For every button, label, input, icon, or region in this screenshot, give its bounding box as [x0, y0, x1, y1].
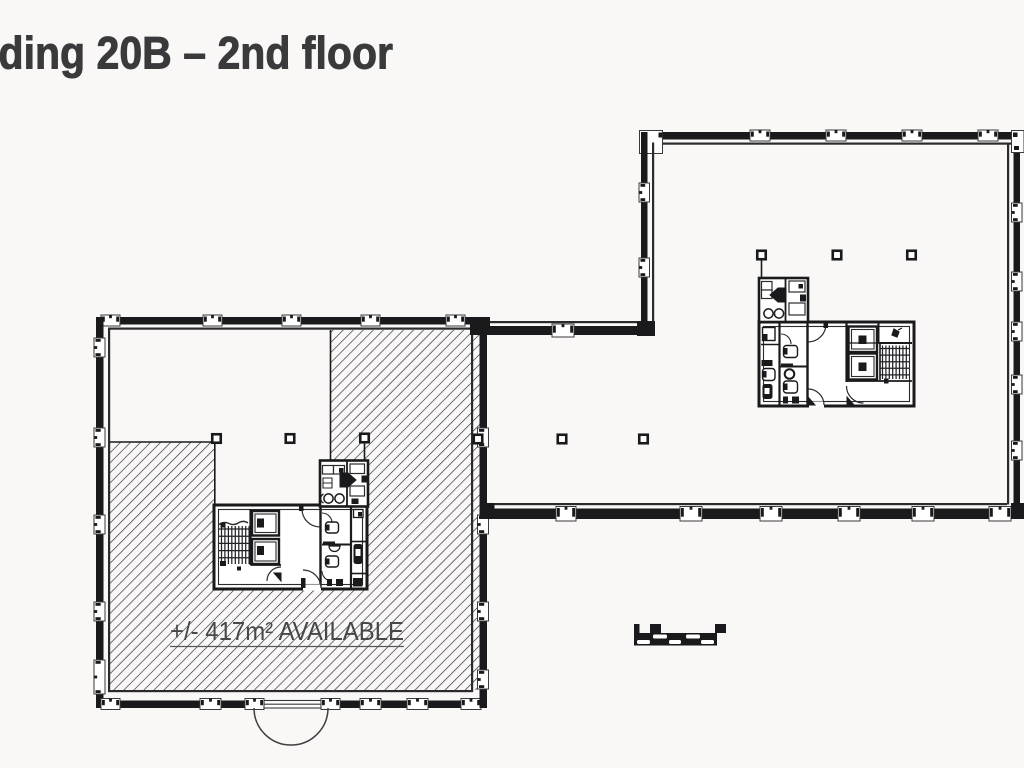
svg-text:+/- 417m² AVAILABLE: +/- 417m² AVAILABLE: [170, 616, 404, 646]
svg-text:Building 20B – 2nd floor: Building 20B – 2nd floor: [0, 28, 393, 79]
